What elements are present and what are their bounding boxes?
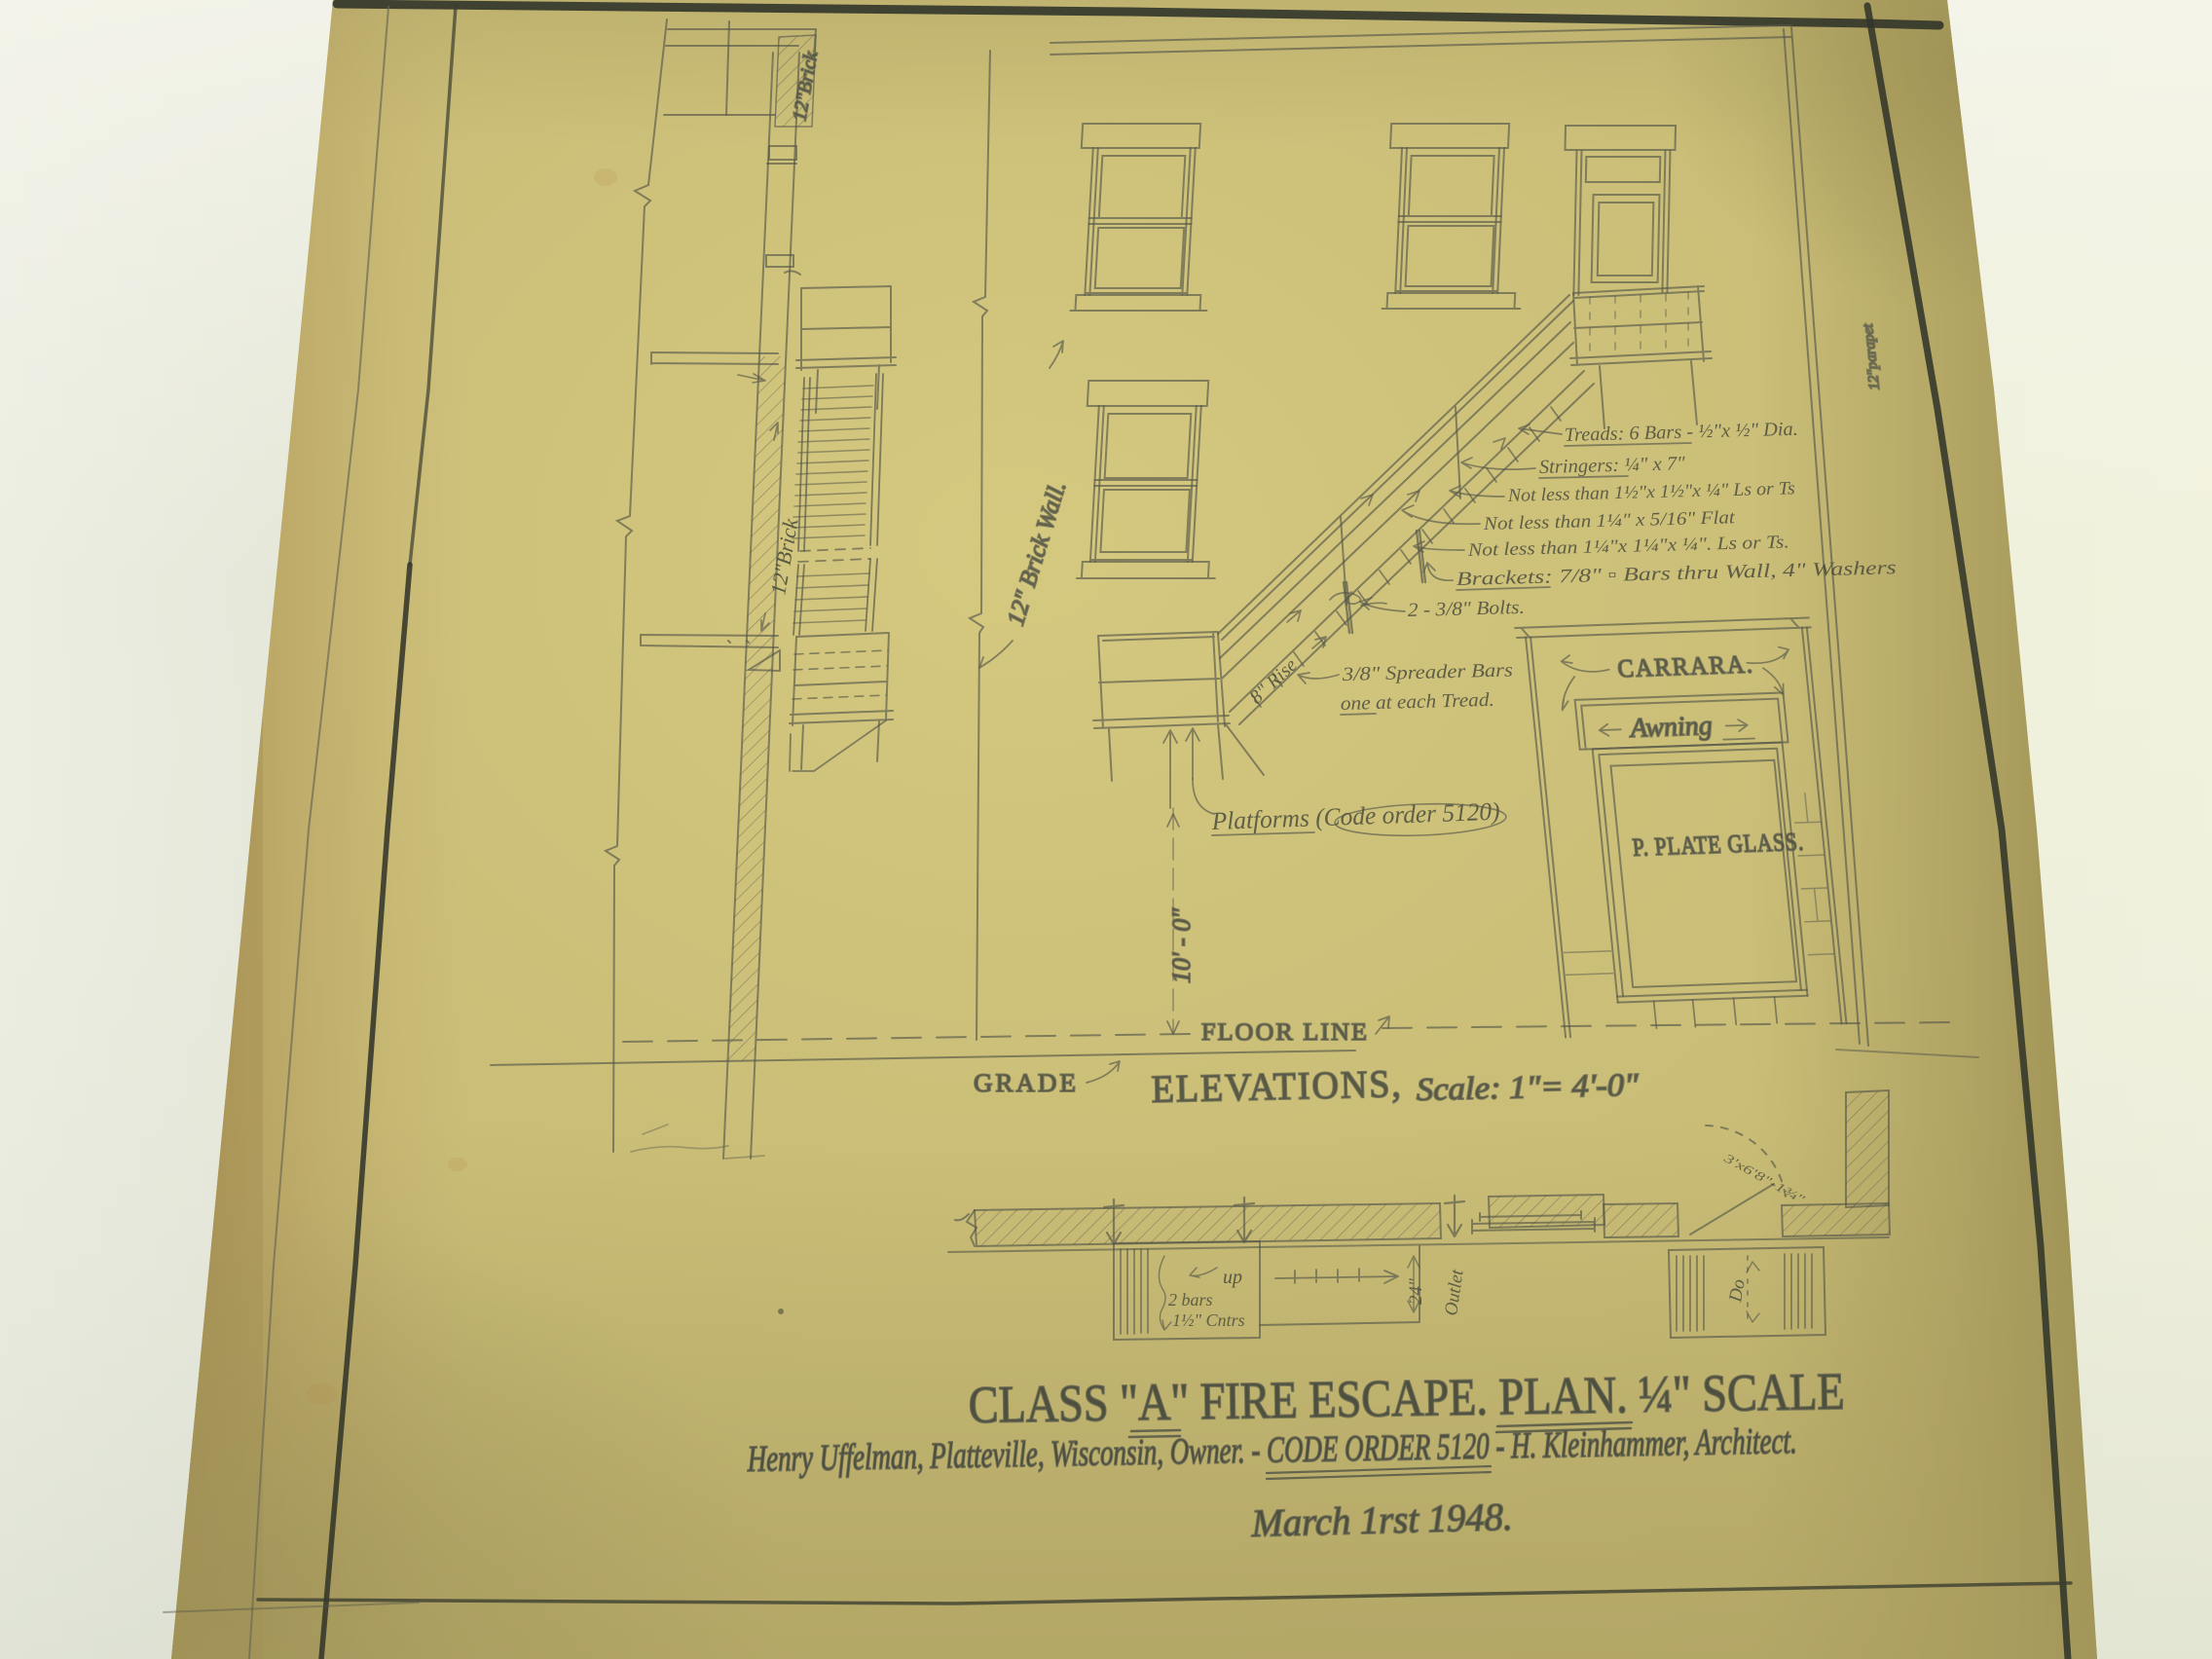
svg-text:up: up [1223, 1267, 1242, 1288]
svg-text:one at each Tread.: one at each Tread. [1341, 689, 1495, 715]
svg-text:P. PLATE GLASS.: P. PLATE GLASS. [1631, 828, 1805, 862]
svg-text:CARRARA.: CARRARA. [1616, 650, 1755, 683]
svg-text:10' - 0": 10' - 0" [1167, 908, 1196, 983]
svg-text:FLOOR LINE: FLOOR LINE [1201, 1019, 1369, 1046]
svg-text:GRADE: GRADE [974, 1069, 1079, 1097]
svg-text:24": 24" [1406, 1277, 1426, 1305]
svg-text:Scale: 1"= 4'-0": Scale: 1"= 4'-0" [1416, 1068, 1639, 1108]
svg-text:Do: Do [1725, 1277, 1750, 1305]
svg-text:2 - 3/8" Bolts.: 2 - 3/8" Bolts. [1408, 597, 1526, 621]
svg-text:ELEVATIONS,: ELEVATIONS, [1151, 1061, 1403, 1111]
svg-text:1½" Cntrs: 1½" Cntrs [1172, 1310, 1245, 1330]
svg-text:Stringers: ¼" x 7": Stringers: ¼" x 7" [1539, 453, 1686, 478]
svg-text:March 1rst 1948.: March 1rst 1948. [1250, 1494, 1513, 1545]
svg-text:3/8" Spreader Bars: 3/8" Spreader Bars [1341, 659, 1513, 685]
svg-text:2 bars: 2 bars [1168, 1290, 1213, 1309]
svg-text:Awning: Awning [1627, 711, 1714, 744]
